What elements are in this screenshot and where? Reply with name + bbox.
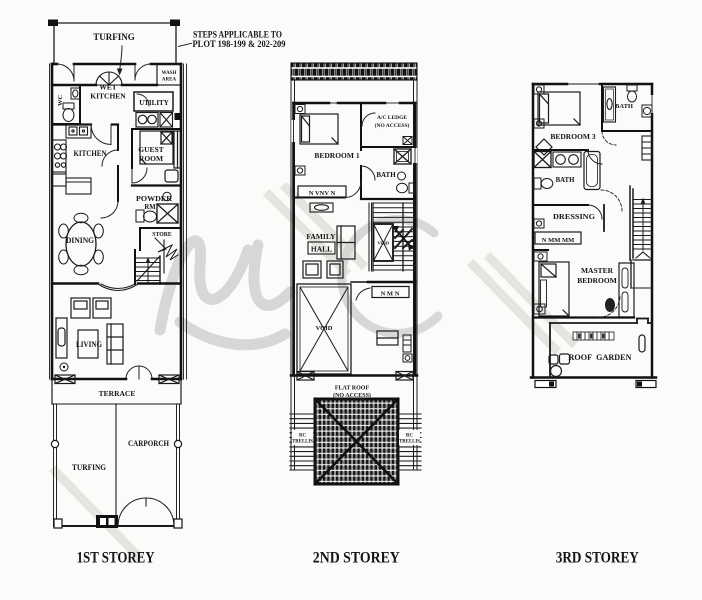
svg-text:HALL: HALL [311, 245, 332, 254]
svg-text:KITCHEN: KITCHEN [90, 92, 126, 101]
svg-text:3RD STOREY: 3RD STOREY [556, 550, 639, 567]
svg-text:WASH: WASH [162, 71, 177, 76]
svg-text:ROOM: ROOM [139, 154, 163, 163]
svg-text:DINING: DINING [66, 235, 94, 245]
svg-text:MASTER: MASTER [581, 266, 614, 275]
svg-text:N M N: N M N [381, 291, 400, 298]
svg-text:RC: RC [406, 434, 413, 439]
svg-text:BATH: BATH [556, 177, 575, 184]
svg-text:CARPORCH: CARPORCH [128, 439, 170, 448]
svg-text:KITCHEN: KITCHEN [74, 148, 108, 158]
svg-text:TERRACE: TERRACE [99, 389, 136, 398]
svg-text:STEPS APPLICABLE TO: STEPS APPLICABLE TO [193, 30, 282, 40]
svg-text:BEDROOM 3: BEDROOM 3 [550, 132, 595, 141]
svg-text:TURFING: TURFING [93, 32, 135, 42]
svg-text:AREA: AREA [162, 78, 177, 83]
svg-text:FLAT ROOF: FLAT ROOF [335, 386, 370, 392]
svg-text:ROOF GARDEN: ROOF GARDEN [569, 353, 632, 362]
svg-text:N MM MM: N MM MM [542, 237, 574, 244]
svg-text:RM: RM [144, 204, 156, 211]
svg-text:BEDROOM: BEDROOM [577, 276, 617, 285]
svg-text:PLOT 198-199 & 202-209: PLOT 198-199 & 202-209 [193, 39, 286, 49]
svg-text:1ST STOREY: 1ST STOREY [77, 550, 155, 567]
svg-text:A/C LEDGE: A/C LEDGE [377, 115, 407, 121]
svg-text:POWDER: POWDER [136, 196, 172, 203]
svg-text:UTILITY: UTILITY [139, 99, 169, 107]
svg-text:2ND STOREY: 2ND STOREY [313, 550, 400, 567]
svg-text:GUEST: GUEST [138, 145, 163, 154]
svg-text:TRELLIS: TRELLIS [292, 440, 313, 445]
svg-text:N VNV N: N VNV N [309, 190, 336, 197]
svg-text:STORE: STORE [152, 232, 172, 238]
svg-text:(NO ACCESS): (NO ACCESS) [375, 122, 410, 129]
svg-text:WET: WET [99, 83, 117, 92]
svg-text:BATH: BATH [615, 103, 633, 110]
svg-text:BEDROOM 1: BEDROOM 1 [314, 151, 359, 160]
svg-text:TRELLIS: TRELLIS [399, 440, 420, 445]
svg-text:TURFING: TURFING [72, 463, 106, 472]
svg-text:VOID: VOID [377, 241, 390, 246]
svg-text:FAMILY: FAMILY [306, 232, 336, 241]
svg-text:VOID: VOID [316, 325, 333, 332]
svg-text:RC: RC [299, 434, 306, 439]
svg-text:DRESSING: DRESSING [553, 212, 595, 221]
svg-text:BATH: BATH [376, 171, 396, 179]
